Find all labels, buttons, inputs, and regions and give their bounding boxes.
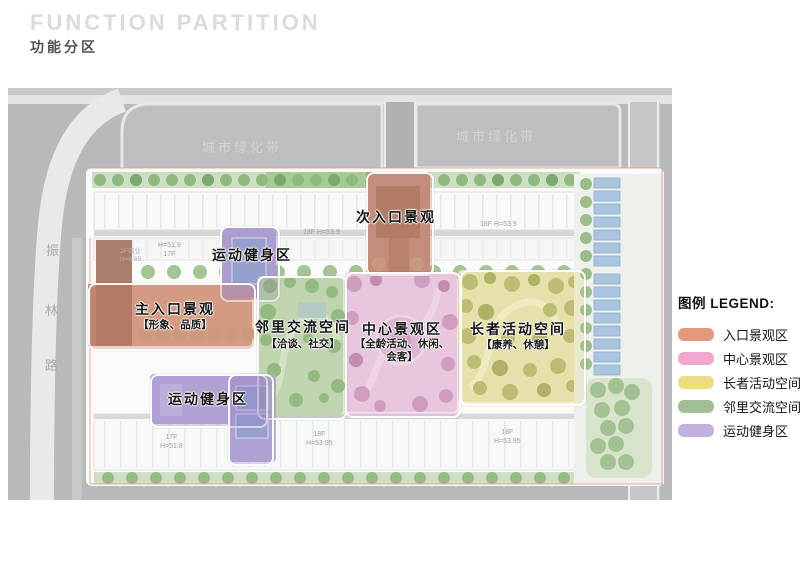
legend-swatch-neighbor [678, 400, 714, 413]
label-secondary-entrance: 次入口景观 [316, 207, 476, 227]
page-title-zh: 功能分区 [30, 37, 98, 57]
legend-label: 入口景观区 [723, 325, 788, 344]
sublabel-elder-space: 【康养、休憩】 [438, 337, 598, 352]
legend-label: 运动健身区 [723, 421, 788, 440]
legend-label: 邻里交流空间 [723, 397, 800, 416]
zone-fitness-lower-ext [228, 374, 274, 466]
greenbelt-label-right: 城市绿化带 [426, 126, 566, 145]
legend-item-fitness: 运动健身区 [678, 423, 800, 437]
legend-label: 长者活动空间 [723, 373, 800, 392]
legend: 图例 LEGEND: 入口景观区 中心景观区 长者活动空间 邻里交流空间 运动健… [678, 292, 800, 447]
function-partition-slide: FUNCTION PARTITION 功能分区 [0, 0, 800, 565]
road-name-char: 路 [45, 355, 58, 374]
road-name-char: 振 [46, 240, 59, 259]
legend-item-entrance: 入口景观区 [678, 327, 800, 341]
building-label: H=51.917F [158, 241, 181, 259]
legend-swatch-entrance [678, 328, 714, 341]
label-fitness-upper: 运动健身区 [172, 245, 332, 265]
label-elder-space: 长者活动空间 [438, 319, 598, 339]
building-label: 18FH=53.95 [306, 430, 333, 448]
page-title-en: FUNCTION PARTITION [30, 10, 321, 36]
legend-item-neighbor: 邻里交流空间 [678, 399, 800, 413]
building-label-podium: 2F商业H=8.65 [120, 248, 141, 264]
legend-label: 中心景观区 [723, 349, 788, 368]
legend-swatch-elder [678, 376, 714, 389]
label-main-entrance: 主入口景观 [95, 299, 255, 319]
greenbelt-label-left: 城市绿化带 [172, 137, 312, 156]
legend-swatch-central [678, 352, 714, 365]
legend-swatch-fitness [678, 424, 714, 437]
building-label: 18F H=53.9 [480, 220, 517, 229]
legend-item-elder: 长者活动空间 [678, 375, 800, 389]
road-name-char: 林 [45, 300, 58, 319]
building-label: 18F H=53.9 [303, 228, 340, 237]
building-label: 17FH=51.8 [160, 433, 183, 451]
legend-item-central: 中心景观区 [678, 351, 800, 365]
label-fitness-lower: 运动健身区 [128, 389, 288, 409]
building-label: 18FH=53.95 [494, 428, 521, 446]
legend-title: 图例 LEGEND: [678, 292, 800, 312]
